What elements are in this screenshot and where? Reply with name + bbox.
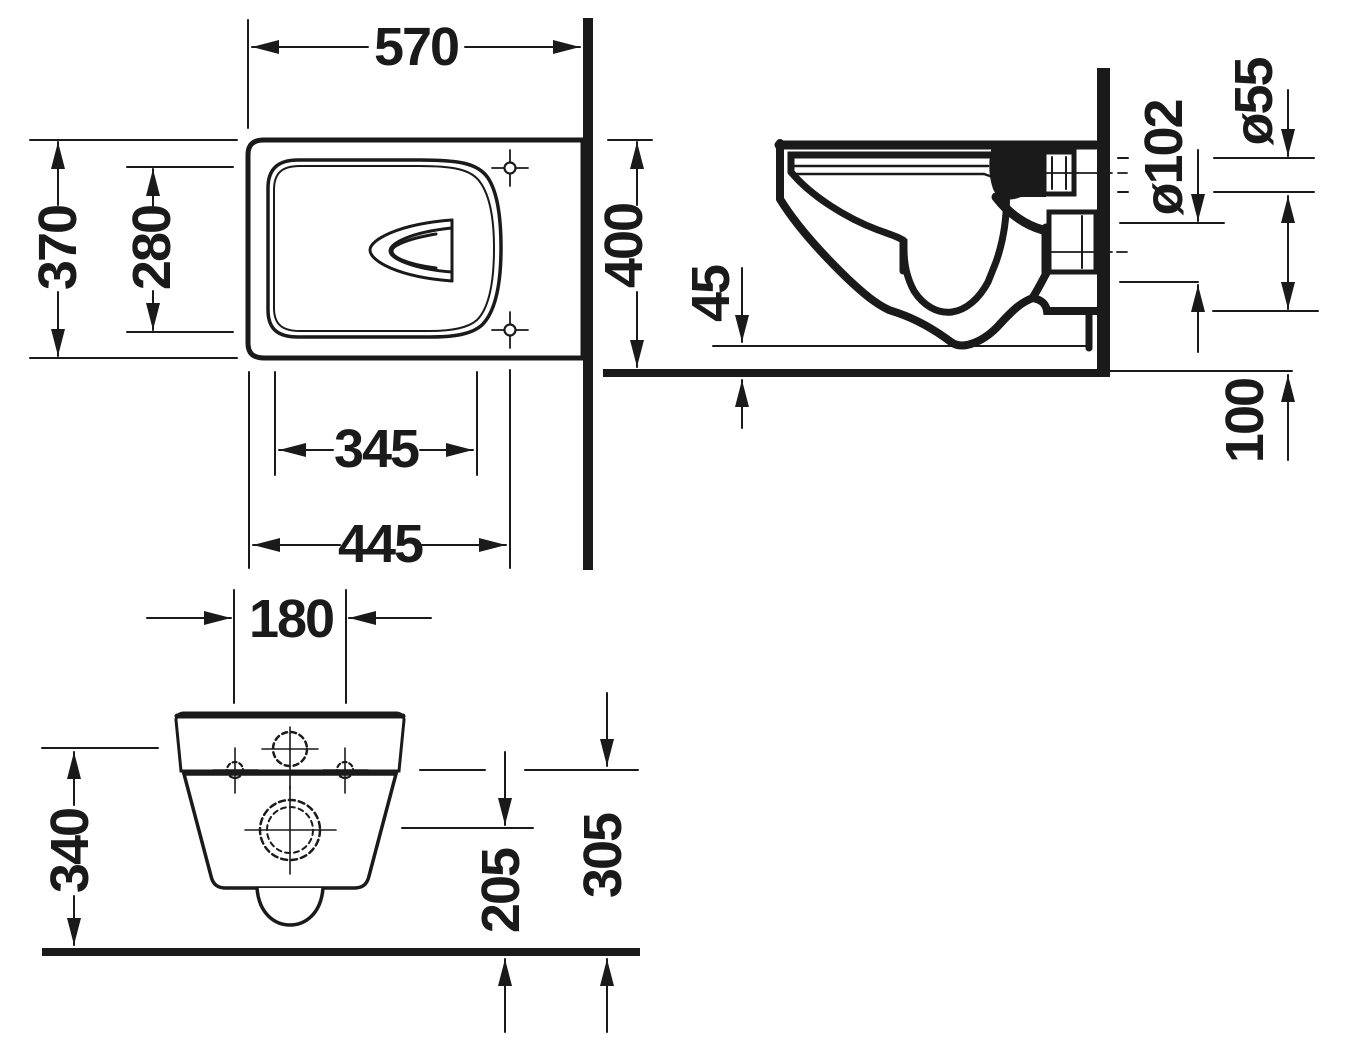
plan-seat-outer <box>268 160 501 337</box>
side-wall-line <box>1097 68 1110 377</box>
dim-100-label: 100 <box>1215 379 1275 463</box>
dim-400-label: 400 <box>594 204 654 288</box>
dim-370-label: 370 <box>28 206 88 290</box>
dim-445-label: 445 <box>338 514 423 574</box>
side-drain-pipe <box>1049 212 1096 272</box>
technical-drawing-canvas: 570 370 280 345 445 <box>0 0 1371 1052</box>
side-view: 400 45 ø102 ø55 100 <box>594 58 1318 464</box>
dim-45-label: 45 <box>681 265 741 322</box>
dim-345-label: 345 <box>334 419 419 479</box>
side-flush-channel <box>989 143 1046 200</box>
dim-205-label: 205 <box>471 848 531 933</box>
dim-102-label: ø102 <box>1134 100 1194 215</box>
dim-570-label: 570 <box>374 17 458 77</box>
side-bowl-interior <box>791 155 1006 312</box>
dim-340-label: 340 <box>40 809 100 893</box>
rear-view: 180 340 205 305 <box>40 589 640 1032</box>
plan-view: 570 370 280 345 445 <box>28 17 593 574</box>
rear-drain-stub <box>257 888 323 925</box>
rear-floor-line <box>42 948 640 956</box>
dim-280-label: 280 <box>122 206 182 290</box>
toilet-dimension-drawing: 570 370 280 345 445 <box>0 0 1371 1052</box>
side-toilet-profile <box>713 143 1127 348</box>
side-floor-line <box>603 369 1110 377</box>
dim-55-label: ø55 <box>1224 58 1284 146</box>
dim-305-label: 305 <box>573 813 633 898</box>
dim-180-label: 180 <box>249 589 333 649</box>
